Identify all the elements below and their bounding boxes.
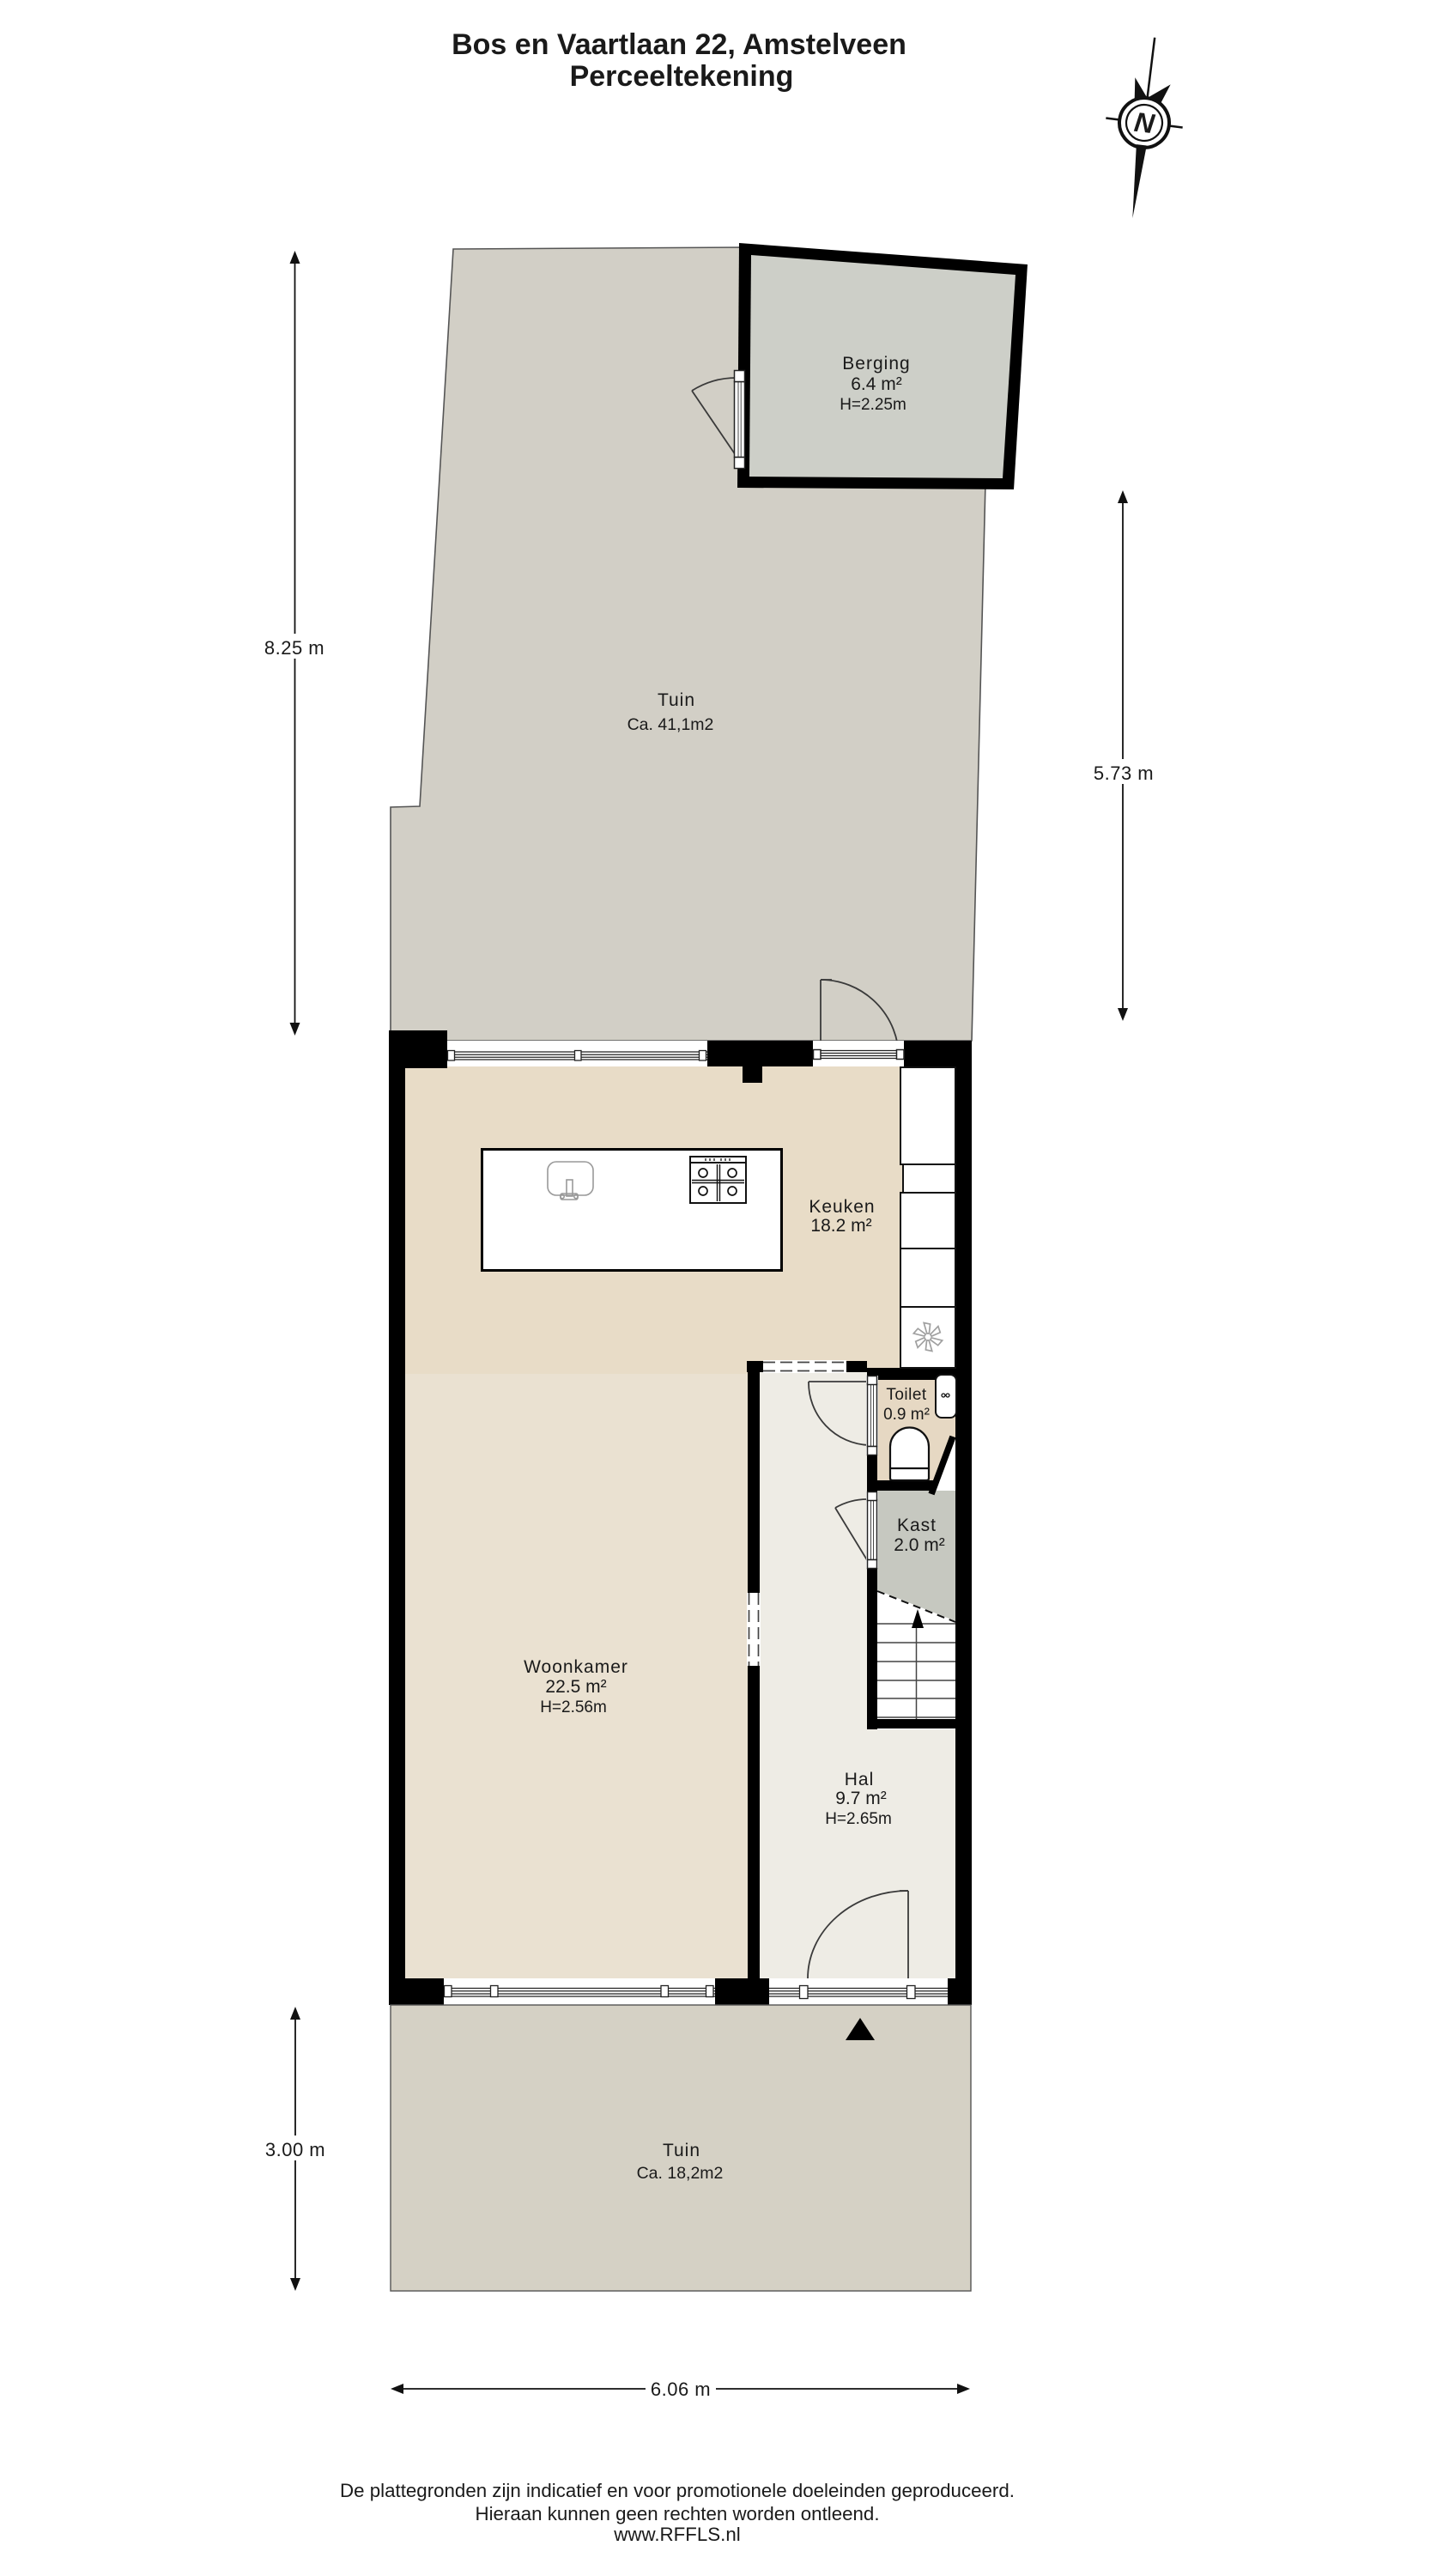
svg-text:De plattegronden zijn indicati: De plattegronden zijn indicatief en voor… — [340, 2480, 1015, 2501]
svg-text:www.RFFLS.nl: www.RFFLS.nl — [613, 2524, 740, 2545]
svg-text:3.00 m: 3.00 m — [265, 2139, 325, 2160]
svg-text:Keuken: Keuken — [809, 1197, 875, 1217]
svg-text:Perceeltekening: Perceeltekening — [570, 60, 794, 93]
svg-text:Ca. 18,2m2: Ca. 18,2m2 — [637, 2164, 724, 2183]
svg-text:Woonkamer: Woonkamer — [524, 1657, 628, 1677]
svg-text:Kast: Kast — [897, 1516, 937, 1535]
svg-text:9.7 m²: 9.7 m² — [835, 1789, 887, 1808]
svg-text:6.4 m²: 6.4 m² — [851, 374, 902, 394]
svg-text:5.73 m: 5.73 m — [1094, 762, 1154, 784]
svg-text:Tuin: Tuin — [658, 690, 695, 710]
svg-text:Hal: Hal — [845, 1770, 875, 1789]
svg-text:Toilet: Toilet — [886, 1386, 927, 1404]
svg-text:Berging: Berging — [842, 354, 910, 374]
svg-text:Tuin: Tuin — [663, 2141, 700, 2160]
svg-text:Ca. 41,1m2: Ca. 41,1m2 — [627, 715, 714, 734]
svg-text:2.0 m²: 2.0 m² — [894, 1535, 945, 1555]
svg-text:8.25 m: 8.25 m — [264, 637, 324, 659]
svg-text:H=2.65m: H=2.65m — [825, 1810, 892, 1828]
svg-text:Hieraan kunnen geen rechten wo: Hieraan kunnen geen rechten worden ontle… — [475, 2503, 879, 2524]
svg-text:H=2.25m: H=2.25m — [840, 396, 906, 414]
svg-text:0.9 m²: 0.9 m² — [883, 1406, 930, 1424]
svg-text:22.5 m²: 22.5 m² — [545, 1677, 606, 1697]
svg-text:Bos en Vaartlaan 22, Amstelvee: Bos en Vaartlaan 22, Amstelveen — [452, 28, 906, 61]
svg-text:H=2.56m: H=2.56m — [540, 1698, 607, 1716]
svg-text:18.2 m²: 18.2 m² — [810, 1216, 871, 1236]
svg-text:6.06 m: 6.06 m — [651, 2379, 711, 2400]
